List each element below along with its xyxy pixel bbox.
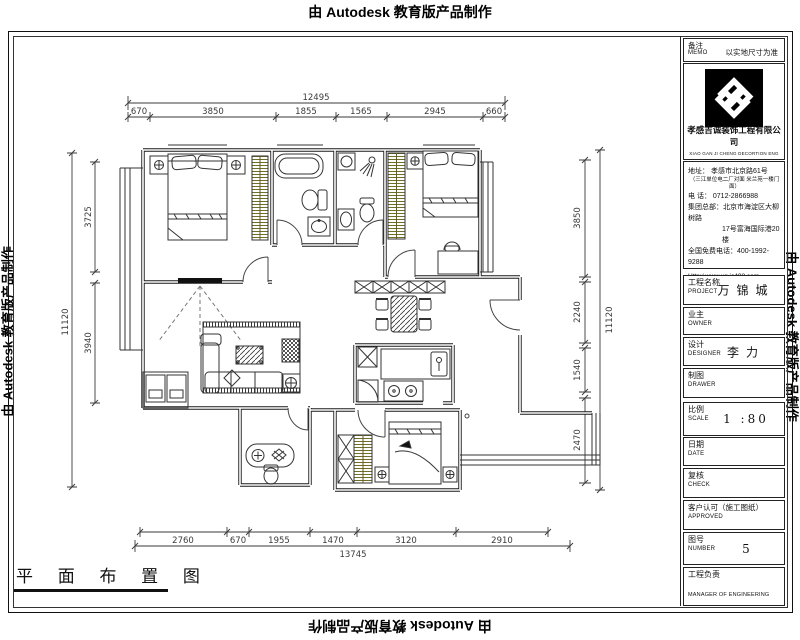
dim-right-2: 2240 bbox=[573, 301, 583, 323]
desk-chair-icon bbox=[438, 242, 478, 274]
dim-top-total: 12495 bbox=[302, 93, 329, 103]
company-hotline: 全国免费电话：400-1992-9288 bbox=[688, 246, 781, 268]
field-approved-label-en: APPROVED bbox=[688, 514, 723, 520]
dim-right-4: 2470 bbox=[573, 429, 583, 451]
dining-area bbox=[355, 281, 445, 332]
bed-icon bbox=[423, 151, 478, 217]
field-approved: 客户认可（施工图纸） APPROVED bbox=[683, 500, 785, 530]
coffee-table-icon bbox=[236, 346, 263, 364]
corner-cabinet-icon bbox=[358, 380, 378, 402]
company-address-note: （三江单位电二厂对面 米兰苑一楼门面） bbox=[688, 177, 781, 191]
field-scale-label: 比例 bbox=[688, 405, 704, 414]
field-drawer-label-en: DRAWER bbox=[688, 382, 716, 388]
field-check-label-en: CHECK bbox=[688, 482, 710, 488]
dim-left-total: 11120 bbox=[61, 308, 71, 335]
bathtub-icon bbox=[275, 154, 323, 178]
field-scale-value: 1 :80 bbox=[714, 412, 778, 426]
sink-icon bbox=[308, 217, 330, 236]
field-owner-label-en: OWNER bbox=[688, 321, 712, 327]
company-name: 孝感吉诚装饰工程有限公司 bbox=[684, 124, 784, 148]
field-project-label-en: PROJECT bbox=[688, 289, 717, 295]
toilet-icon bbox=[264, 465, 278, 484]
floor-plan: 12495 670 3850 1855 1565 2945 660 2760 6… bbox=[55, 50, 675, 590]
stove-icon bbox=[384, 381, 423, 401]
company-name-en: XIAO GAN JI CHENG DECORTION ENG bbox=[684, 151, 784, 156]
nightstand-lamp-icon bbox=[407, 153, 423, 169]
memo-box: 备注 MEMO 以实地尺寸为准 bbox=[683, 38, 785, 62]
dim-left-1: 3725 bbox=[84, 206, 94, 228]
nightstand-lamp-icon bbox=[443, 467, 457, 482]
memo-label: 备注 bbox=[688, 41, 703, 50]
dim-bottom-4: 1470 bbox=[322, 536, 344, 546]
wardrobe-icon bbox=[252, 156, 268, 240]
field-designer: 设计 DESIGNER 李力 bbox=[683, 337, 785, 366]
field-manager-label: 工程负责 bbox=[688, 570, 720, 579]
plan-title-underline bbox=[14, 589, 168, 592]
bedroom-2 bbox=[388, 151, 478, 274]
field-check: 复核 CHECK bbox=[683, 468, 785, 498]
kitchen-sink-icon bbox=[431, 352, 447, 376]
field-scale: 比例 SCALE 1 :80 bbox=[683, 402, 785, 436]
company-hq-1: 集团总部：北京市海淀区大柳树路 bbox=[688, 202, 781, 224]
dim-top-1: 670 bbox=[131, 107, 147, 117]
sink-icon bbox=[338, 209, 354, 230]
bathroom-3 bbox=[246, 444, 294, 484]
tv-projection bbox=[158, 286, 242, 348]
dim-top-4: 1565 bbox=[350, 107, 372, 117]
washer-units-icon bbox=[143, 372, 188, 408]
field-drawer-label: 制图 bbox=[688, 371, 704, 380]
company-phone: 电 话： 0712-2866988 bbox=[688, 191, 781, 202]
address-box: 地址： 孝感市北京路61号 （三江单位电二厂对面 米兰苑一楼门面） 电 话： 0… bbox=[683, 161, 785, 269]
dim-right-3: 1540 bbox=[573, 359, 583, 381]
field-project-value: 万锦城 bbox=[714, 282, 778, 299]
dining-table-icon bbox=[391, 296, 417, 332]
dim-bottom-1: 2760 bbox=[172, 536, 194, 546]
counter-icon bbox=[381, 349, 450, 379]
dim-right-1: 3850 bbox=[573, 207, 583, 229]
dim-bottom-3: 1955 bbox=[268, 536, 290, 546]
field-number-label-en: NUMBER bbox=[688, 546, 715, 552]
watermark-bottom: 由 Autodesk 教育版产品制作 bbox=[0, 616, 800, 636]
drawing-sheet: { "watermark": { "text": "由 Autodesk 教育版… bbox=[0, 0, 800, 640]
field-project: 工程名称 PROJECT 万锦城 bbox=[683, 275, 785, 305]
company-address: 地址： 孝感市北京路61号 bbox=[688, 166, 781, 177]
field-designer-value: 李力 bbox=[714, 343, 778, 360]
shower-icon bbox=[360, 157, 375, 177]
dim-bottom-2: 670 bbox=[230, 536, 246, 546]
field-date-label: 日期 bbox=[688, 440, 704, 449]
tv-icon bbox=[178, 278, 222, 283]
armchair-icon bbox=[282, 339, 299, 362]
washing-machine-icon bbox=[338, 153, 355, 170]
field-designer-label: 设计 bbox=[688, 340, 704, 349]
field-check-label: 复核 bbox=[688, 471, 704, 480]
dim-right-total: 11120 bbox=[605, 306, 615, 333]
dim-top-3: 1855 bbox=[295, 107, 317, 117]
memo-label-en: MEMO bbox=[688, 50, 707, 56]
toilet-icon bbox=[302, 190, 327, 210]
watermark-top: 由 Autodesk 教育版产品制作 bbox=[0, 2, 800, 22]
wardrobe-icon bbox=[338, 435, 372, 483]
logo-box: 孝感吉诚装饰工程有限公司 XIAO GAN JI CHENG DECORTION… bbox=[683, 63, 785, 160]
dim-bottom-total: 13745 bbox=[339, 550, 366, 560]
field-date: 日期 DATE bbox=[683, 437, 785, 466]
bathroom-1 bbox=[275, 154, 330, 236]
dim-left-2: 3940 bbox=[84, 332, 94, 354]
living-room bbox=[143, 322, 300, 408]
plan-title: 平 面 布 置 图 bbox=[16, 562, 210, 587]
bedroom-3 bbox=[338, 422, 457, 484]
field-date-label-en: DATE bbox=[688, 451, 704, 457]
field-manager-label-en: MANAGER OF ENGINEERING bbox=[688, 592, 769, 598]
fridge-icon bbox=[358, 347, 377, 367]
field-scale-label-en: SCALE bbox=[688, 416, 709, 422]
field-drawer: 制图 DRAWER bbox=[683, 368, 785, 398]
memo-value: 以实地尺寸为准 bbox=[726, 47, 779, 58]
field-manager: 工程负责 MANAGER OF ENGINEERING bbox=[683, 567, 785, 606]
field-approved-label: 客户认可（施工图纸） bbox=[688, 503, 763, 512]
field-number-label: 图号 bbox=[688, 535, 704, 544]
field-number-value: 5 bbox=[714, 542, 778, 556]
master-bedroom bbox=[150, 154, 268, 348]
cabinet-row-icon bbox=[355, 281, 445, 293]
bed-icon bbox=[389, 422, 441, 484]
nightstand-lamp-icon bbox=[150, 156, 168, 174]
kitchen bbox=[358, 347, 450, 402]
field-owner-label: 业主 bbox=[688, 310, 704, 319]
toilet-icon bbox=[360, 198, 374, 222]
nightstand-lamp-icon bbox=[227, 156, 245, 174]
company-logo bbox=[705, 69, 763, 132]
company-hq-2: 17号富海国际港20楼 bbox=[688, 224, 781, 246]
wardrobe-icon bbox=[388, 153, 405, 239]
vanity-icon bbox=[246, 444, 294, 467]
title-block: 备注 MEMO 以实地尺寸为准 孝感吉诚装饰工程有限公司 XIAO GAN JI… bbox=[680, 34, 789, 608]
bathroom-2 bbox=[338, 153, 375, 230]
field-owner: 业主 OWNER bbox=[683, 307, 785, 335]
dim-top-5: 2945 bbox=[424, 107, 446, 117]
nightstand-lamp-icon bbox=[375, 467, 389, 482]
dim-bottom-6: 2910 bbox=[491, 536, 513, 546]
dim-top-2: 3850 bbox=[202, 107, 224, 117]
dim-top-6: 660 bbox=[486, 107, 502, 117]
field-number: 图号 NUMBER 5 bbox=[683, 532, 785, 565]
double-bed-icon bbox=[168, 154, 227, 240]
dim-bottom-5: 3120 bbox=[395, 536, 417, 546]
